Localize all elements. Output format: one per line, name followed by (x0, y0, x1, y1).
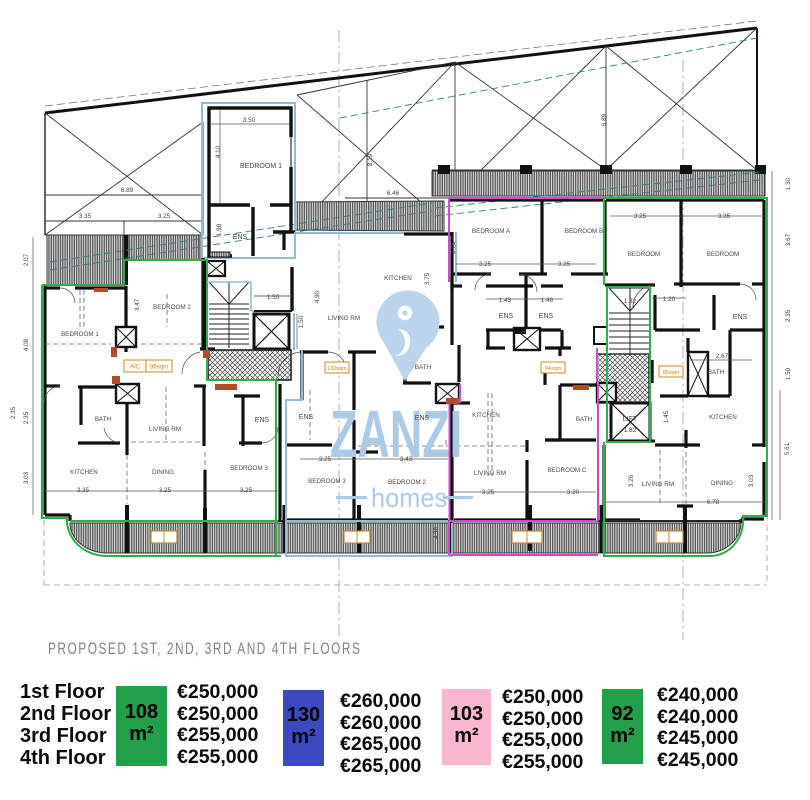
svg-text:5.61: 5.61 (784, 442, 791, 455)
svg-text:ENS: ENS (499, 313, 514, 320)
svg-text:1.50: 1.50 (267, 294, 280, 301)
svg-text:1.98: 1.98 (216, 223, 223, 236)
svg-text:4.08: 4.08 (23, 338, 30, 351)
svg-text:94sqm: 94sqm (545, 366, 562, 372)
svg-text:3.35: 3.35 (718, 213, 731, 220)
svg-text:3.25: 3.25 (319, 456, 332, 463)
svg-text:3.25: 3.25 (634, 213, 647, 220)
svg-text:96sqm: 96sqm (150, 365, 168, 371)
svg-text:2.07: 2.07 (23, 253, 30, 266)
svg-text:BEDROOM B: BEDROOM B (565, 228, 604, 235)
svg-text:2.67: 2.67 (716, 353, 729, 360)
svg-text:1.46: 1.46 (541, 297, 554, 304)
svg-text:2.35: 2.35 (785, 309, 792, 322)
svg-text:ENS: ENS (233, 234, 248, 241)
svg-text:4.10: 4.10 (215, 145, 222, 158)
svg-text:3.03: 3.03 (748, 474, 755, 487)
svg-text:3.20: 3.20 (567, 489, 580, 496)
svg-text:1.82: 1.82 (624, 427, 637, 434)
svg-text:3.25: 3.25 (159, 487, 172, 494)
svg-text:3.25: 3.25 (158, 213, 171, 220)
svg-text:1.82: 1.82 (624, 298, 637, 305)
svg-text:BEDROOM 3: BEDROOM 3 (230, 465, 268, 472)
svg-text:BATH: BATH (415, 364, 432, 371)
svg-text:2.35: 2.35 (23, 411, 30, 424)
svg-text:3.25: 3.25 (558, 261, 571, 268)
svg-text:BATH: BATH (708, 369, 725, 376)
svg-text:3.25: 3.25 (482, 489, 495, 496)
svg-text:1.43: 1.43 (499, 297, 512, 304)
svg-text:ENS: ENS (299, 414, 314, 421)
svg-text:BEDROOM 1: BEDROOM 1 (240, 163, 282, 170)
svg-text:LIVING RM: LIVING RM (149, 426, 181, 433)
svg-text:homes: homes (371, 482, 447, 513)
svg-text:ENS: ENS (255, 417, 270, 424)
svg-text:BEDROOM 1: BEDROOM 1 (61, 331, 99, 338)
svg-text:8.19: 8.19 (367, 153, 374, 166)
svg-text:130sqm: 130sqm (327, 366, 347, 372)
svg-text:KITCHEN: KITCHEN (70, 469, 98, 476)
svg-text:6.46: 6.46 (387, 190, 400, 197)
svg-text:6.89: 6.89 (121, 187, 134, 194)
svg-text:BEDROOM 2: BEDROOM 2 (153, 304, 191, 311)
svg-text:3.25: 3.25 (240, 487, 253, 494)
svg-text:6.78: 6.78 (707, 499, 720, 506)
svg-text:3.26: 3.26 (628, 474, 635, 487)
svg-text:A/C: A/C (130, 365, 141, 371)
svg-text:BATH: BATH (95, 416, 112, 423)
svg-text:ENS: ENS (733, 314, 748, 321)
svg-text:BATH: BATH (576, 416, 593, 423)
svg-text:BEDROOM C: BEDROOM C (548, 467, 587, 474)
svg-text:85sqm: 85sqm (663, 370, 680, 376)
svg-text:1.50: 1.50 (298, 315, 305, 328)
svg-text:3.67: 3.67 (785, 233, 792, 246)
svg-text:1.50: 1.50 (785, 367, 792, 380)
svg-text:3.35: 3.35 (79, 213, 92, 220)
svg-text:KITCHEN: KITCHEN (472, 412, 500, 419)
svg-text:2.35: 2.35 (10, 406, 17, 419)
svg-text:ZANZI: ZANZI (330, 397, 462, 472)
svg-text:ENS: ENS (539, 313, 554, 320)
svg-text:LIVING RM: LIVING RM (328, 315, 360, 322)
svg-text:LIVING RM: LIVING RM (474, 470, 506, 477)
svg-text:BEDROOM 3: BEDROOM 3 (308, 478, 346, 485)
svg-text:BEDROOM A: BEDROOM A (472, 228, 511, 235)
svg-text:BEDROOM: BEDROOM (707, 251, 740, 258)
svg-text:LIVING RM: LIVING RM (642, 481, 674, 488)
svg-text:1.45: 1.45 (663, 410, 670, 423)
svg-text:3.75: 3.75 (450, 241, 457, 254)
svg-text:KITCHEN: KITCHEN (709, 414, 737, 421)
svg-text:KITCHEN: KITCHEN (384, 275, 412, 282)
svg-text:LIFT: LIFT (623, 416, 638, 423)
svg-text:DINING: DINING (711, 480, 733, 487)
svg-text:BEDROOM 2: BEDROOM 2 (388, 479, 426, 486)
svg-text:4.38: 4.38 (434, 527, 440, 539)
svg-text:3.43: 3.43 (400, 456, 413, 463)
svg-text:BEDROOM: BEDROOM (628, 251, 661, 258)
svg-text:3.03: 3.03 (23, 471, 30, 484)
svg-text:ENS: ENS (415, 415, 430, 422)
svg-text:1.30: 1.30 (785, 177, 792, 190)
svg-text:1.20: 1.20 (663, 296, 676, 303)
svg-text:4.90: 4.90 (314, 290, 321, 303)
svg-text:3.50: 3.50 (243, 117, 256, 124)
svg-text:3.25: 3.25 (479, 261, 492, 268)
svg-text:3.75: 3.75 (424, 272, 431, 285)
svg-text:3.35: 3.35 (77, 487, 90, 494)
svg-text:6.89: 6.89 (601, 113, 608, 126)
svg-text:DINING: DINING (152, 469, 174, 476)
svg-text:3.47: 3.47 (134, 298, 141, 311)
